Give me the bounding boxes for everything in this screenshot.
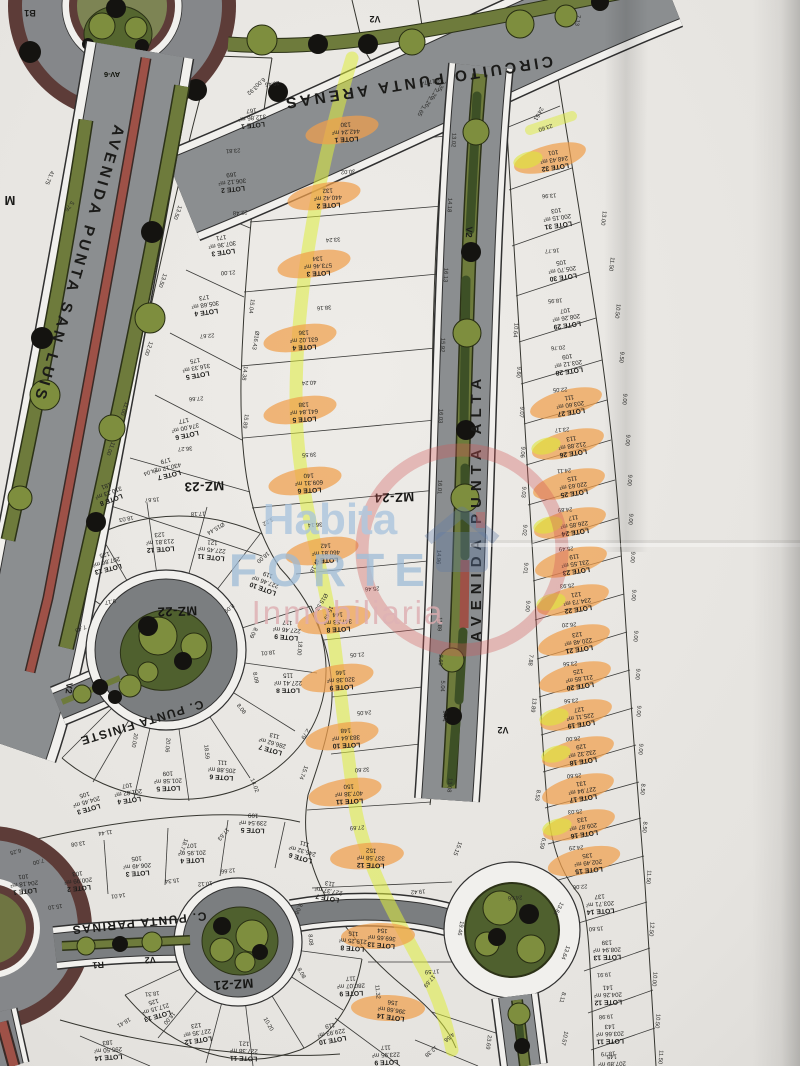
lot-id-label: 123 <box>571 630 583 638</box>
lot-id-label: 148 <box>340 726 351 734</box>
dimension-label: 9.00 <box>632 630 639 642</box>
dimension-label: 9.00 <box>629 551 636 563</box>
dimension-label: 23.17 <box>555 425 570 432</box>
dimension-label: 9.00 <box>635 705 642 717</box>
lot-id-label: 152 <box>365 847 376 854</box>
dimension-label: 19.98 <box>599 1012 614 1019</box>
watermark-inmobiliaria: Inmobiliaria <box>252 594 445 631</box>
median-dot <box>308 34 328 54</box>
site-plan-map: LOTE 32248.43 m²101LOTE 31200.15 m²103LO… <box>0 0 800 1066</box>
dimension-label: 9.07 <box>518 406 525 418</box>
dimension-label: 30.02 <box>341 167 356 174</box>
label-v2-west: V2 <box>64 682 75 694</box>
label-av6: AV-6 <box>104 70 120 79</box>
dimension-label: 18.79 <box>601 1049 616 1056</box>
lot-id-label: 127 <box>573 705 585 713</box>
lot-id-label: 107 <box>559 306 571 314</box>
dimension-label: 26.20 <box>562 620 577 627</box>
lot-id-label: 167 <box>245 106 257 114</box>
dimension-label: 10.50 <box>653 1014 660 1029</box>
lot-id-label: 135 <box>581 851 593 859</box>
median-dot <box>92 679 108 695</box>
lot-id-label: 183 <box>102 1038 113 1046</box>
lot-id-label: 132 <box>322 186 333 194</box>
lot-id-label: 136 <box>298 328 309 336</box>
tree-icon <box>89 13 115 39</box>
dimension-label: 36.27 <box>178 444 193 451</box>
label-b1: B1 <box>24 8 36 18</box>
dimension-label: 5.04 <box>439 680 446 692</box>
dimension-label: 9.02 <box>521 524 528 536</box>
dimension-label: 24.05 <box>357 708 372 715</box>
median-dot <box>358 34 378 54</box>
tree-icon <box>399 29 425 55</box>
dimension-label: 9.00 <box>637 743 644 755</box>
lot-id-label: 123 <box>154 530 165 538</box>
lot-id-label: 150 <box>343 782 354 790</box>
lot-id-label: 130 <box>340 120 351 128</box>
tree-icon <box>73 685 91 703</box>
dimension-label: 9.00 <box>624 434 631 446</box>
lot-id-label: 105 <box>131 854 142 862</box>
dimension-label: 18.95 <box>548 296 563 303</box>
tree-icon <box>142 932 162 952</box>
label-v2-alta: V2 <box>464 226 474 237</box>
lot-id-label: 138 <box>298 400 309 408</box>
dimension-label: 8.50 <box>641 821 648 833</box>
median-dot <box>174 652 192 670</box>
dimension-label: 18.00 <box>295 641 302 656</box>
lot-id-label: 103 <box>71 869 83 877</box>
dimension-label: 23.56 <box>564 696 579 703</box>
dimension-label: 9.00 <box>626 474 633 486</box>
dimension-label: 25.60 <box>567 771 582 778</box>
lot-id-label: 171 <box>215 233 227 241</box>
dimension-label: 22.67 <box>200 331 215 338</box>
lot-id-label: 121 <box>238 1040 249 1047</box>
label-mz21: MZ-21 <box>213 976 254 994</box>
label-mz22: MZ-22 <box>157 603 198 619</box>
dimension-label: 22.05 <box>553 385 568 392</box>
lot-id-label: 105 <box>555 258 567 266</box>
watermark-house-icon <box>436 532 488 572</box>
lot-area-label: 239.54 m² <box>239 819 267 827</box>
lot-number-label: LOTE 8 <box>276 686 300 693</box>
dimension-label: 24.11 <box>557 467 571 474</box>
dimension-label: 16.01 <box>436 480 443 495</box>
watermark-habita: Habita <box>263 495 398 544</box>
dimension-label: 27.69 <box>350 823 365 830</box>
lot-id-label: 173 <box>198 293 210 301</box>
dimension-label: 16.03 <box>437 409 444 424</box>
dimension-label: 25.03 <box>568 807 583 814</box>
dimension-label: 9.00 <box>524 600 531 612</box>
dimension-label: 23.81 <box>226 146 241 153</box>
median-dot <box>252 944 268 960</box>
dimension-label: 18.59 <box>202 744 209 759</box>
lot-id-label: 169 <box>225 170 237 178</box>
lot-area-label: 203.66 m² <box>596 1030 624 1038</box>
lot-id-label: 111 <box>217 758 227 766</box>
lot-id-label: 146 <box>335 668 346 676</box>
dimension-label: 18.01 <box>261 648 276 655</box>
lot-id-label: 133 <box>576 815 588 823</box>
watermark-chimney <box>476 512 485 528</box>
dimension-label: 20.06 <box>163 738 170 753</box>
tree-icon <box>77 937 95 955</box>
lot-id-label: 101 <box>17 872 29 880</box>
dimension-label: 26.00 <box>566 734 581 741</box>
dimension-label: 12.50 <box>647 922 654 937</box>
tree-icon <box>235 952 255 972</box>
dimension-label: 32.60 <box>355 765 370 772</box>
lot-area-label: 227.38 m² <box>230 1047 258 1055</box>
dimension-label: 9.60 <box>515 366 522 378</box>
dimension-label: 13.96 <box>542 191 557 198</box>
lot-id-label: 117 <box>345 975 356 982</box>
lot-id-label: 103 <box>550 206 562 214</box>
tree-icon <box>135 303 165 333</box>
tree-icon <box>119 675 141 697</box>
tree-icon <box>463 119 489 145</box>
tree-icon <box>517 935 545 963</box>
lot-area-label: 223.95 m² <box>372 1051 400 1059</box>
dimension-label: 20.76 <box>551 343 566 350</box>
dimension-label: 9.06 <box>519 446 526 458</box>
tree-icon <box>453 319 481 347</box>
lot-id-label: 156 <box>387 998 399 1006</box>
dimension-label: 2.60 <box>437 654 444 666</box>
label-v2-mid: V2 <box>497 725 508 735</box>
lot-id-label: 115 <box>348 929 359 937</box>
lot-id-label: 123 <box>190 1021 202 1029</box>
lot-id-label: 115 <box>283 672 293 679</box>
lot-id-label: 117 <box>567 513 578 521</box>
lot-id-label: 115 <box>566 474 577 482</box>
dimension-label: 13.02 <box>450 133 457 148</box>
dimension-label: 11.50 <box>644 870 651 885</box>
median-dot <box>112 936 128 952</box>
lot-id-label: 154 <box>377 926 388 934</box>
dimension-label: 38.16 <box>317 303 332 310</box>
tree-icon <box>99 415 125 441</box>
site-plan-photo: LOTE 32248.43 m²101LOTE 31200.15 m²103LO… <box>0 0 800 1066</box>
lot-id-label: 107 <box>121 781 133 789</box>
dimension-label: 9.03 <box>520 486 527 498</box>
label-mz23: MZ-23 <box>184 478 225 494</box>
culdesac-mz22 <box>86 570 246 730</box>
dimension-label: 16.77 <box>545 246 560 253</box>
lot-id-label: 109 <box>247 812 258 819</box>
dimension-label: 7.88 <box>527 654 534 666</box>
lot-area-label: 280.07 m² <box>337 982 365 990</box>
dimension-label: 19.42 <box>411 887 426 894</box>
dimension-label: 9.00 <box>627 513 634 525</box>
dimension-label: 16.13 <box>442 268 449 283</box>
label-v2-top: V2 <box>369 14 380 24</box>
label-v2-parinas: V2 <box>144 955 156 966</box>
dimension-label: 39.55 <box>302 450 317 457</box>
lot-id-label: 129 <box>575 742 587 750</box>
dimension-label: 9.00 <box>630 589 637 601</box>
tree-icon <box>247 25 277 55</box>
dimension-label: 9.74 <box>441 710 448 722</box>
median-dot <box>488 928 506 946</box>
lot-area-label: 227.41 m² <box>274 679 302 686</box>
lot-id-label: 111 <box>563 393 574 401</box>
lot-id-label: 143 <box>604 1023 615 1030</box>
dimension-label: 14.18 <box>446 198 453 213</box>
tree-icon <box>210 938 234 962</box>
dimension-label: 40.24 <box>301 378 317 385</box>
dimension-label: 9.00 <box>621 393 628 405</box>
median-dot <box>108 690 122 704</box>
lot-id-label: 141 <box>602 984 613 991</box>
lot-id-label: 131 <box>575 779 587 787</box>
dimension-label: 19.91 <box>597 970 612 977</box>
dimension-label: 24.29 <box>569 843 584 850</box>
dimension-label: 10.00 <box>650 972 657 987</box>
dimension-label: 8.50 <box>639 783 646 795</box>
dimension-label: 12.66 <box>221 866 236 873</box>
label-r1: R1 <box>92 960 104 971</box>
lot-id-label: 137 <box>594 892 605 900</box>
lot-id-label: 117 <box>380 1044 391 1051</box>
dimension-label: 15.92 <box>439 338 446 353</box>
dimension-label: 22.48 <box>233 208 248 215</box>
dimension-label: 21.00 <box>221 268 236 275</box>
tree-icon <box>506 10 534 38</box>
dimension-label: 17.18 <box>191 510 206 517</box>
watermark-forte: FORTE <box>229 544 435 596</box>
street-east-lane <box>292 910 450 920</box>
dimension-label: 9.00 <box>634 668 641 680</box>
lot-area-label: 204.26 m² <box>594 991 622 999</box>
dimension-label: 21.05 <box>350 650 365 657</box>
dimension-label: 22.06 <box>573 882 588 889</box>
dimension-label: 15.60 <box>589 924 604 931</box>
median-dot <box>86 512 106 532</box>
dimension-label: 27.66 <box>189 394 204 401</box>
dimension-label: 23.56 <box>563 659 578 666</box>
lot-id-label: 139 <box>601 939 612 946</box>
lot-id-label: 113 <box>565 434 576 442</box>
median-dot <box>19 41 41 63</box>
lot-id-label: 125 <box>572 667 584 675</box>
tree-icon <box>8 486 32 510</box>
dimension-label: 9.01 <box>522 562 529 574</box>
tree-icon <box>125 17 147 39</box>
median-dot <box>461 242 481 262</box>
roundabout-bottom-right <box>444 862 580 998</box>
label-m-edge: M <box>5 193 16 208</box>
lot-id-label: 101 <box>547 148 559 156</box>
lot-id-label: 140 <box>303 471 314 479</box>
dimension-label: 24.66 <box>508 894 523 901</box>
lot-id-label: 134 <box>312 254 323 262</box>
dimension-label: 33.24 <box>325 235 341 242</box>
lot-id-label: 119 <box>568 552 579 560</box>
lot-id-label: 121 <box>570 590 582 598</box>
median-dot <box>141 221 163 243</box>
street-name-punta-alta: AVENIDA PUNTA ALTA <box>468 373 485 642</box>
tree-icon <box>138 662 158 682</box>
lot-area-label: 208.94 m² <box>593 946 621 954</box>
dimension-label: 11.50 <box>656 1050 663 1065</box>
dimension-label: 8.08 <box>307 934 314 946</box>
lot-id-label: 109 <box>561 352 573 360</box>
median-dot <box>138 616 158 636</box>
dimension-label: 15.67 <box>145 495 160 502</box>
tree-icon <box>508 1003 530 1025</box>
median-dot <box>213 917 231 935</box>
lot-id-label: 121 <box>207 538 219 546</box>
lot-area-label: 337.58 m² <box>357 854 385 862</box>
dimension-label: 11.32 <box>373 985 380 1000</box>
lot-area-label: 201.58 m² <box>154 777 182 785</box>
median-dot <box>514 1038 530 1054</box>
median-dot <box>519 904 539 924</box>
lot-id-label: 109 <box>162 770 173 777</box>
